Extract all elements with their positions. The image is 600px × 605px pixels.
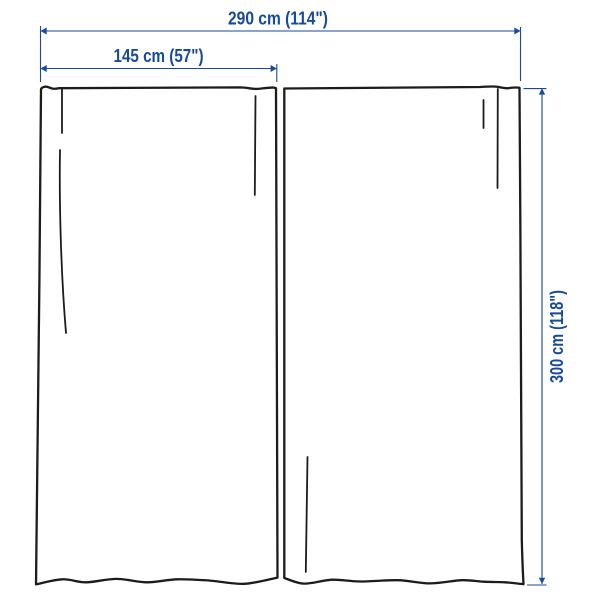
svg-text:290 cm (114"): 290 cm (114") xyxy=(228,9,328,29)
svg-text:300 cm (118"): 300 cm (118") xyxy=(547,290,567,383)
svg-text:145 cm (57"): 145 cm (57") xyxy=(114,46,204,66)
